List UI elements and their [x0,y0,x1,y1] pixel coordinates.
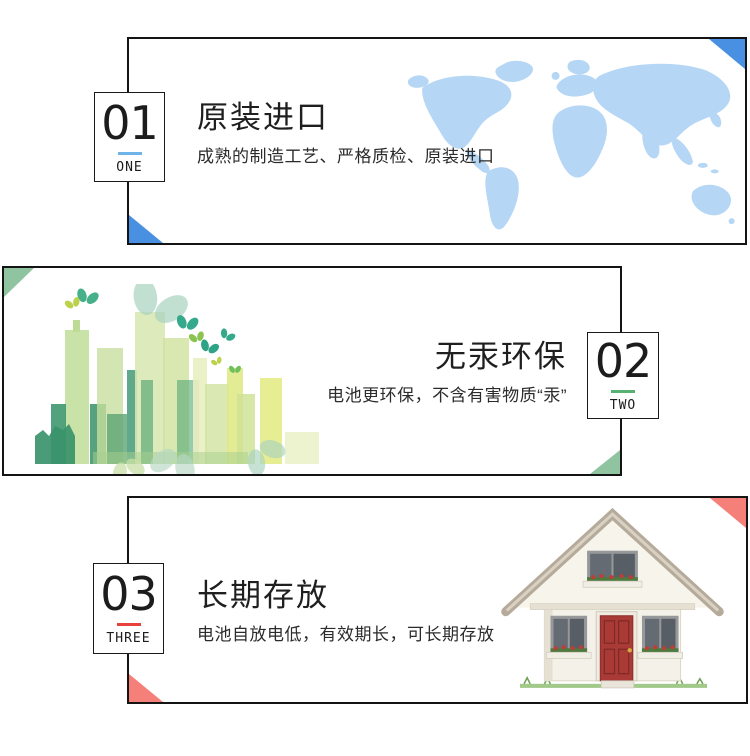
number-word: ONE [116,160,142,175]
section-3-text: 长期存放 电池自放电低，有效期长，可长期存放 [197,577,495,646]
number-text: 03 [100,571,157,617]
section-subtitle: 电池更环保，不含有害物质“汞” [327,385,567,407]
section-title: 原装进口 [197,99,495,136]
number-text: 01 [101,100,158,146]
corner-triangle-bottom-right [590,450,620,474]
number-badge-2: 02 TWO [587,332,659,419]
section-subtitle: 成熟的制造工艺、严格质检、原装进口 [197,146,495,168]
number-text: 02 [595,338,652,384]
corner-triangle-bottom-left [129,215,163,243]
section-title: 无汞环保 [327,338,567,375]
number-badge-1: 01 ONE [94,92,165,182]
number-badge-3: 03 THREE [93,563,164,654]
number-underline [117,623,141,626]
number-word: THREE [106,631,150,646]
number-underline [118,152,142,155]
number-word: TWO [610,398,636,413]
section-subtitle: 电池自放电低，有效期长，可长期存放 [197,624,495,646]
house-icon [493,506,733,694]
corner-triangle-top-left [4,268,34,297]
section-2-text: 无汞环保 电池更环保，不含有害物质“汞” [327,338,567,407]
section-title: 长期存放 [197,577,495,614]
green-city-icon [35,284,325,474]
number-underline [611,390,635,393]
corner-triangle-bottom-left [129,674,163,702]
section-1-text: 原装进口 成熟的制造工艺、严格质检、原装进口 [197,99,495,168]
marketing-page: 01 ONE 原装进口 成熟的制造工艺、严格质检、原装进口 [0,0,750,756]
